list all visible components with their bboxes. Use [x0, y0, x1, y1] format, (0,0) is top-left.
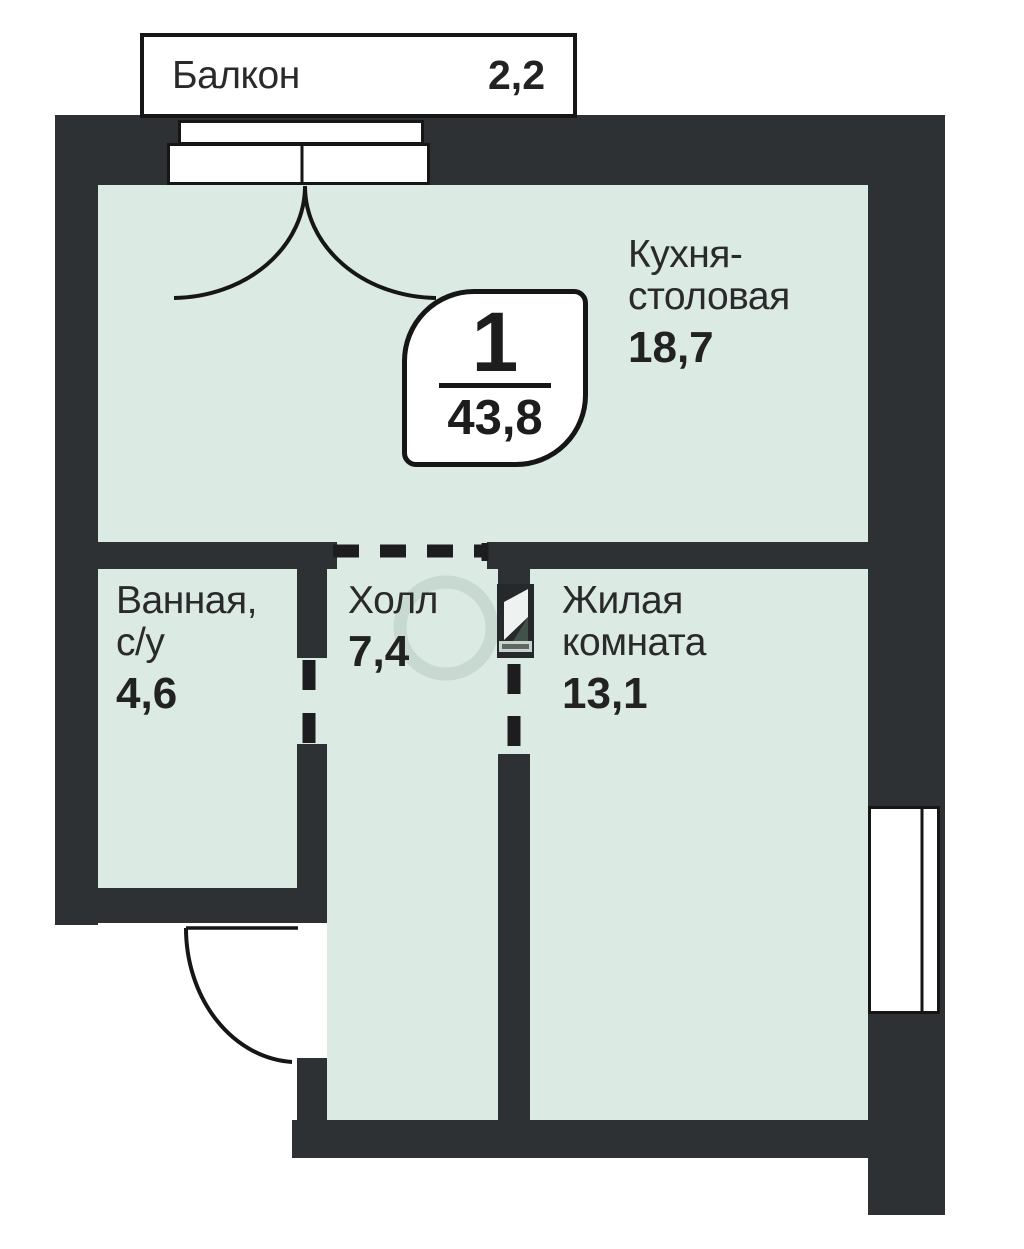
floor-plan: Балкон 2,2 1 43,8 Кухня- столовая 18,7 В…: [0, 0, 1024, 1249]
room-label-kitchen: Кухня- столовая 18,7: [628, 234, 790, 371]
balcony-door-right-arc: [305, 186, 436, 298]
entrance-door-arc: [186, 928, 292, 1062]
apartment-badge: 1 43,8: [402, 289, 588, 467]
balcony-label-box: Балкон 2,2: [140, 33, 577, 118]
hall-area: 7,4: [348, 629, 438, 675]
balcony-door-left-arc: [174, 186, 305, 298]
bathroom-name-line1: Ванная,: [116, 580, 257, 622]
bathroom-area: 4,6: [116, 671, 257, 717]
kitchen-name-line2: столовая: [628, 276, 790, 318]
kitchen-name-line1: Кухня-: [628, 234, 790, 276]
watermark-logo-band-text: [502, 644, 529, 649]
badge-divider: [439, 383, 551, 388]
living-area: 13,1: [562, 671, 706, 717]
hall-name: Холл: [348, 580, 438, 622]
room-label-bathroom: Ванная, с/у 4,6: [116, 580, 257, 717]
badge-rooms-count: 1: [472, 304, 519, 380]
badge-total-area: 43,8: [447, 392, 542, 444]
room-label-living: Жилая комната 13,1: [562, 580, 706, 717]
living-name-line1: Жилая: [562, 580, 706, 622]
balcony-area: 2,2: [488, 52, 545, 99]
kitchen-area: 18,7: [628, 325, 790, 371]
bathroom-name-line2: с/у: [116, 622, 257, 664]
balcony-name: Балкон: [172, 54, 300, 98]
watermark-logo: [497, 584, 534, 658]
living-name-line2: комната: [562, 622, 706, 664]
room-label-hall: Холл 7,4: [348, 580, 438, 675]
